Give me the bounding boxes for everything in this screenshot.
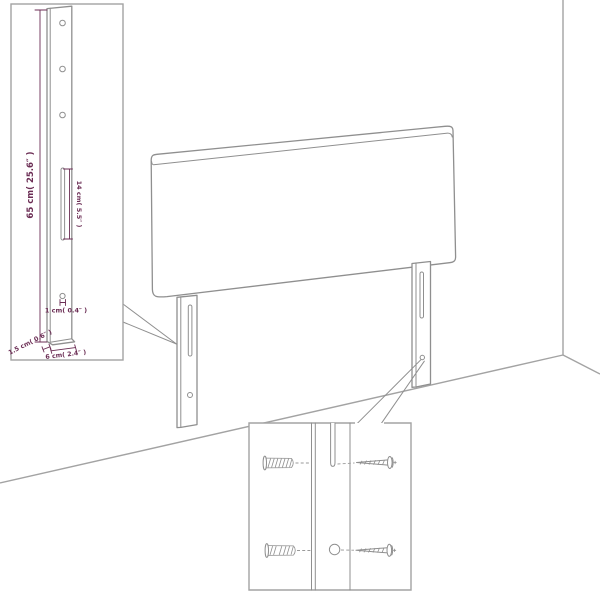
callout-line [123, 322, 177, 344]
headboard-panel [151, 126, 455, 297]
diagram-canvas: 65 cm( 25.6″ ) 14 cm( 5.5″ ) 1 cm( 0.4″ … [0, 0, 600, 600]
floor-line-right [563, 355, 600, 374]
left-detail-box: 65 cm( 25.6″ ) 14 cm( 5.5″ ) 1 cm( 0.4″ … [7, 4, 123, 361]
detail-leg-hole-1 [60, 20, 66, 26]
leg-strip-hole [329, 544, 339, 554]
left-callout-lines [123, 304, 177, 344]
detail-leg-hole-3 [60, 112, 66, 118]
slot-length-label: 14 cm( 5.5″ ) [75, 181, 83, 228]
leg-height-label: 65 cm( 25.6″ ) [26, 151, 36, 218]
screw-head [388, 457, 393, 469]
anchor-collar [265, 544, 268, 558]
headboard-left-leg [177, 295, 197, 427]
right-leg-slot [420, 272, 424, 318]
headboard-right-leg [412, 262, 431, 388]
right-leg-hole [420, 355, 424, 359]
detail-leg-slot [61, 168, 65, 240]
detail-leg-hole-bottom [60, 293, 65, 298]
callout-line [358, 360, 421, 423]
left-leg-outline [177, 295, 197, 427]
bottom-detail-box [249, 423, 411, 590]
left-leg-hole [188, 393, 193, 398]
detail-box-border [249, 423, 411, 590]
anchor-collar [263, 456, 266, 470]
detail-leg-hole-2 [60, 66, 66, 72]
leg-strip-slot [331, 423, 335, 466]
panel-outline [151, 126, 455, 297]
headboard-assembly-diagram: 65 cm( 25.6″ ) 14 cm( 5.5″ ) 1 cm( 0.4″ … [0, 0, 600, 600]
hole-size-label: 1 cm( 0.4″ ) [45, 307, 87, 315]
callout-line [123, 304, 177, 344]
detail-leg [47, 6, 75, 345]
left-leg-slot [188, 305, 192, 356]
screw-head [387, 544, 392, 556]
